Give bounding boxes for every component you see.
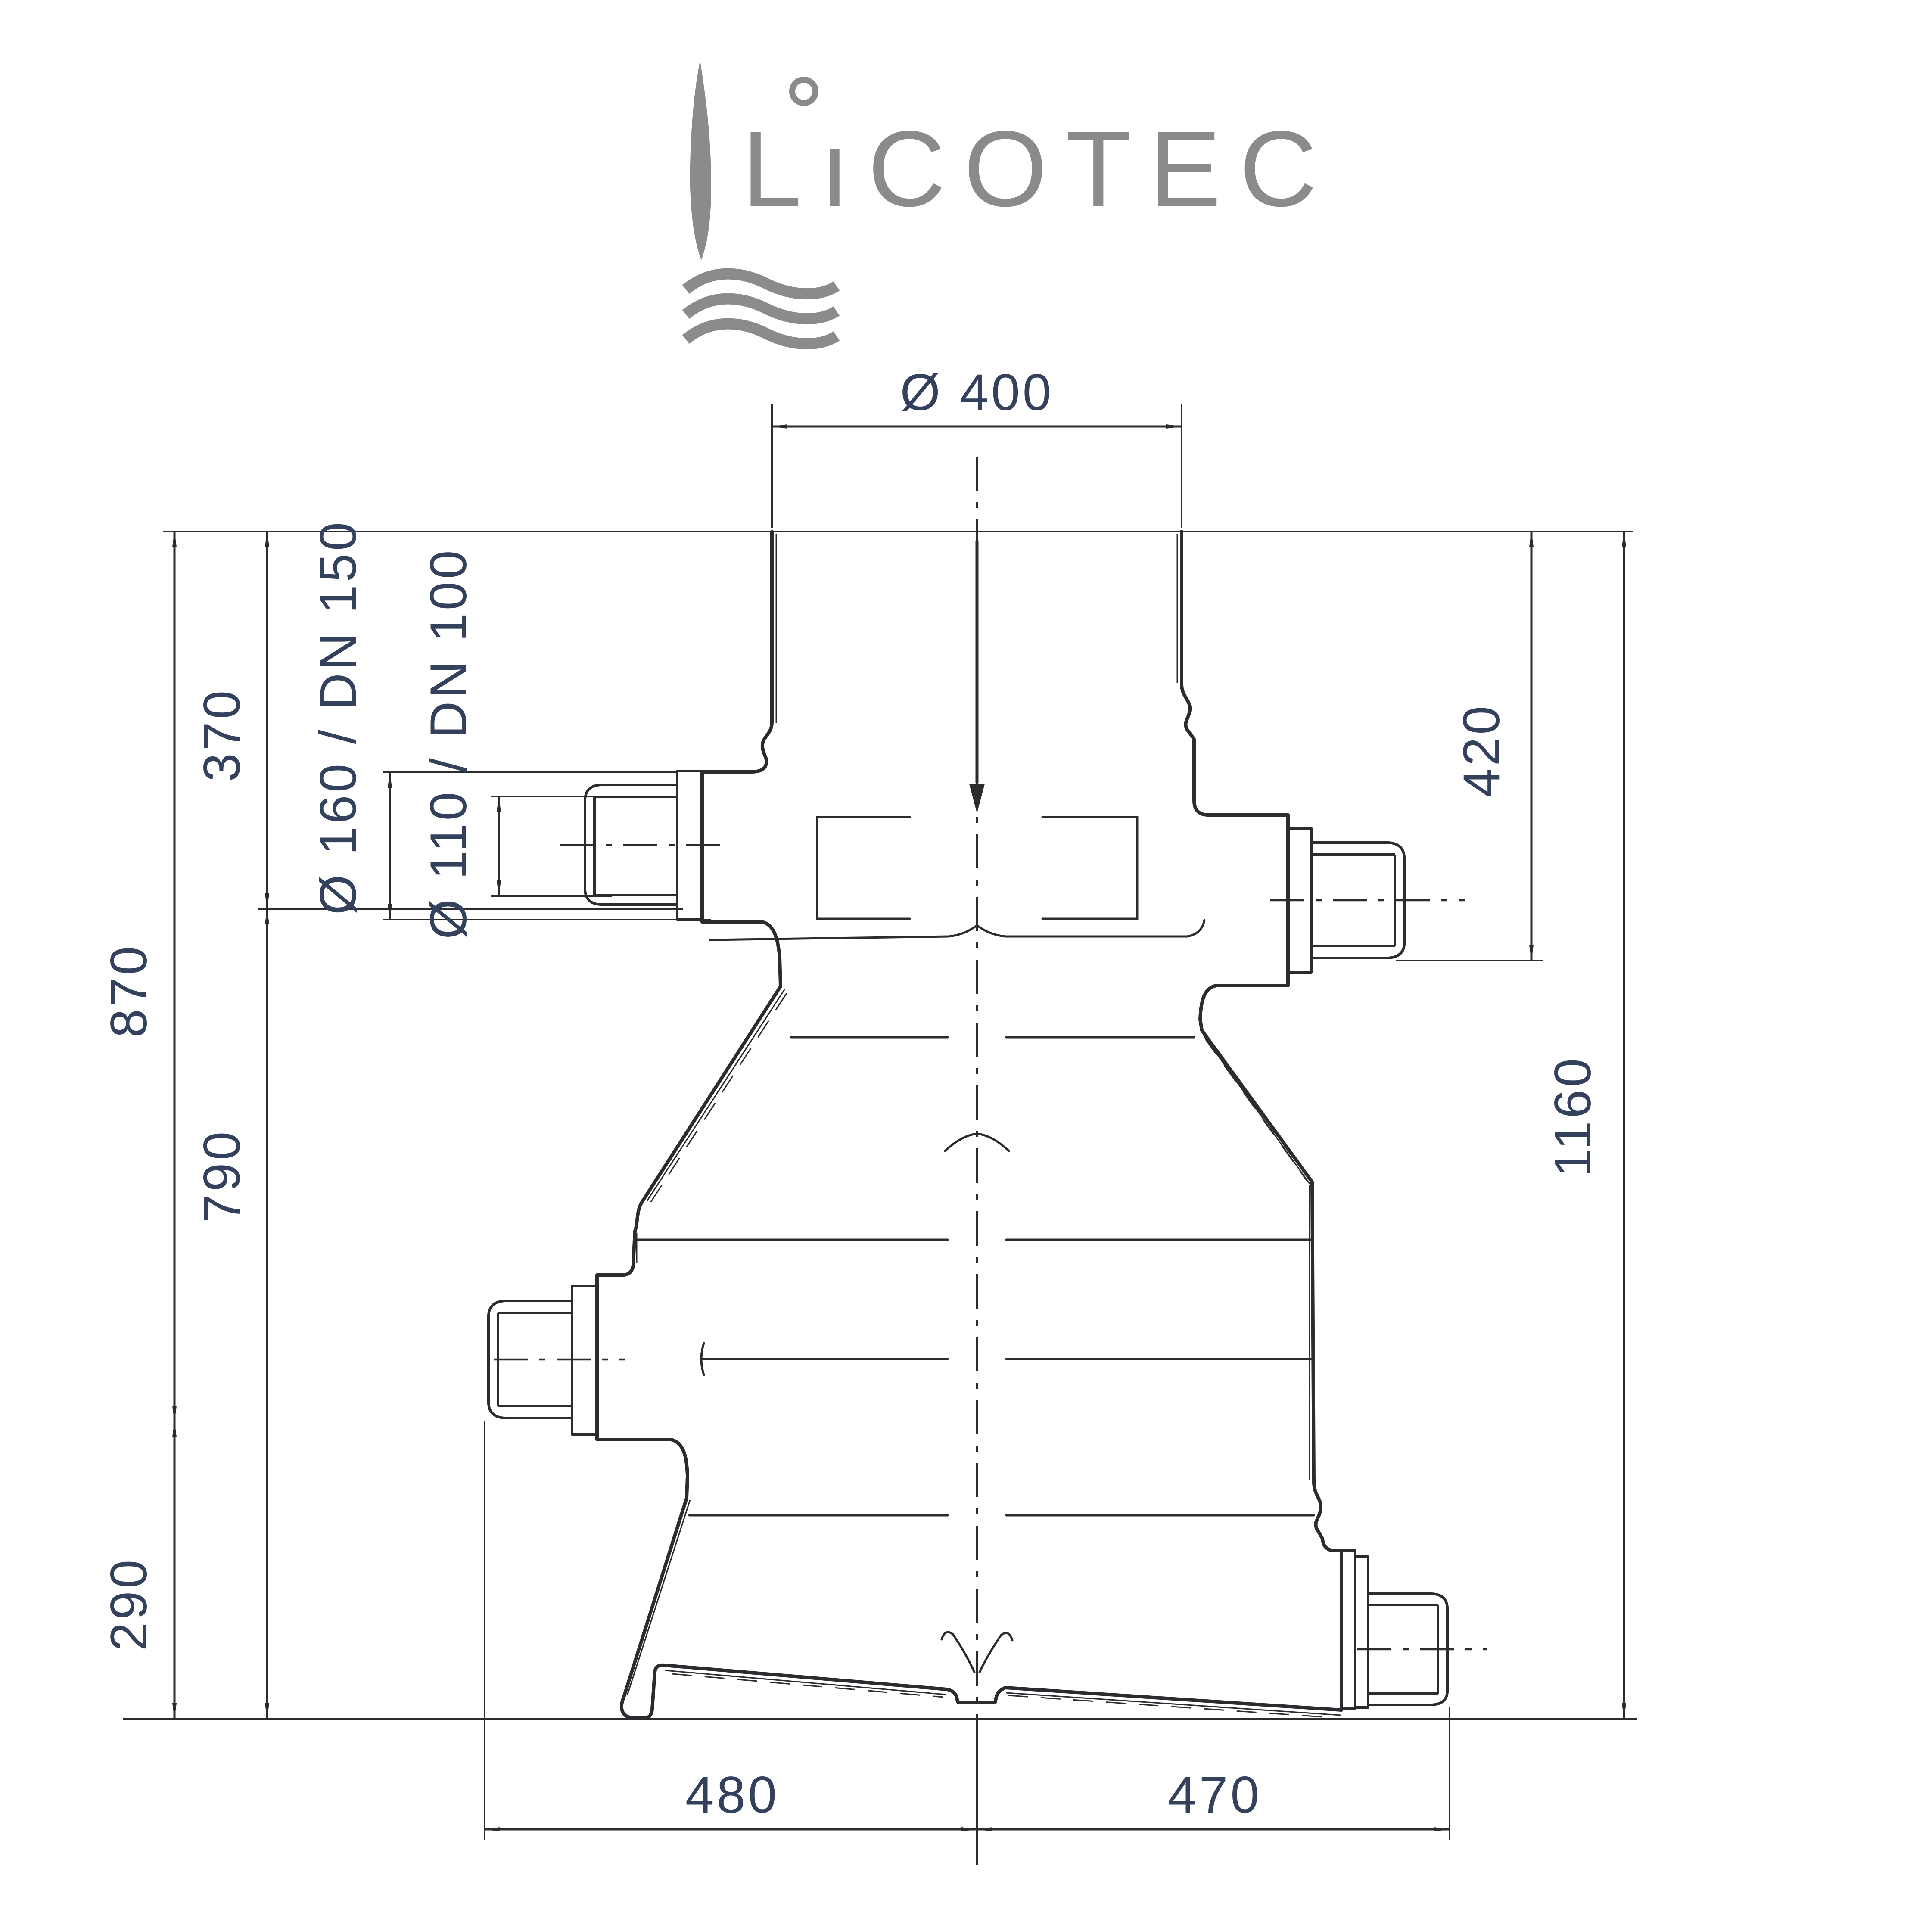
dim-label-790: 790 [193,1129,251,1223]
logo: LıCOTEC [686,60,1335,344]
weld-seam-lines [637,1037,1314,1515]
technical-drawing-canvas: LıCOTEC [0,0,1932,1931]
dim-label-290: 290 [100,1557,158,1651]
water-waves-icon [686,274,837,344]
tank-inner-wall-lines [627,534,1341,1715]
tank-outline [597,532,1341,1718]
dim-label-480: 480 [685,1766,779,1824]
dimension-lines [174,426,1624,1829]
dim-label-370: 370 [193,688,251,782]
inner-pipe-left [817,817,910,919]
nozzle-lower-right [1341,1551,1447,1708]
dim-label-1160: 1160 [1544,1056,1602,1177]
dim-label-top-diameter: Ø 400 [900,364,1054,421]
nozzle-wall-plate [1341,1551,1355,1708]
drawing-page: LıCOTEC [0,0,1932,1931]
i-ring-dot-icon [792,80,815,103]
tank-right-profile [1182,532,1341,1710]
dim-label-inlet-pipe: Ø 110 / DN 100 [420,548,477,939]
inner-pipe-right [1042,817,1137,919]
dim-label-470: 470 [1168,1766,1262,1824]
flow-arrow-icon [969,541,985,813]
funnel-line [710,920,1204,940]
tank-left-profile [597,532,1341,1718]
nozzle-flange [1355,1557,1368,1707]
brand-wordmark: LıCOTEC [742,109,1335,229]
interior-details [637,817,1314,1672]
dim-label-inlet-socket: Ø 160 / DN 150 [309,519,367,915]
dim-label-420: 420 [1453,703,1510,797]
leaf-blade-icon [690,60,711,260]
floor-hatch [649,993,1335,1718]
dim-label-870: 870 [100,944,158,1038]
